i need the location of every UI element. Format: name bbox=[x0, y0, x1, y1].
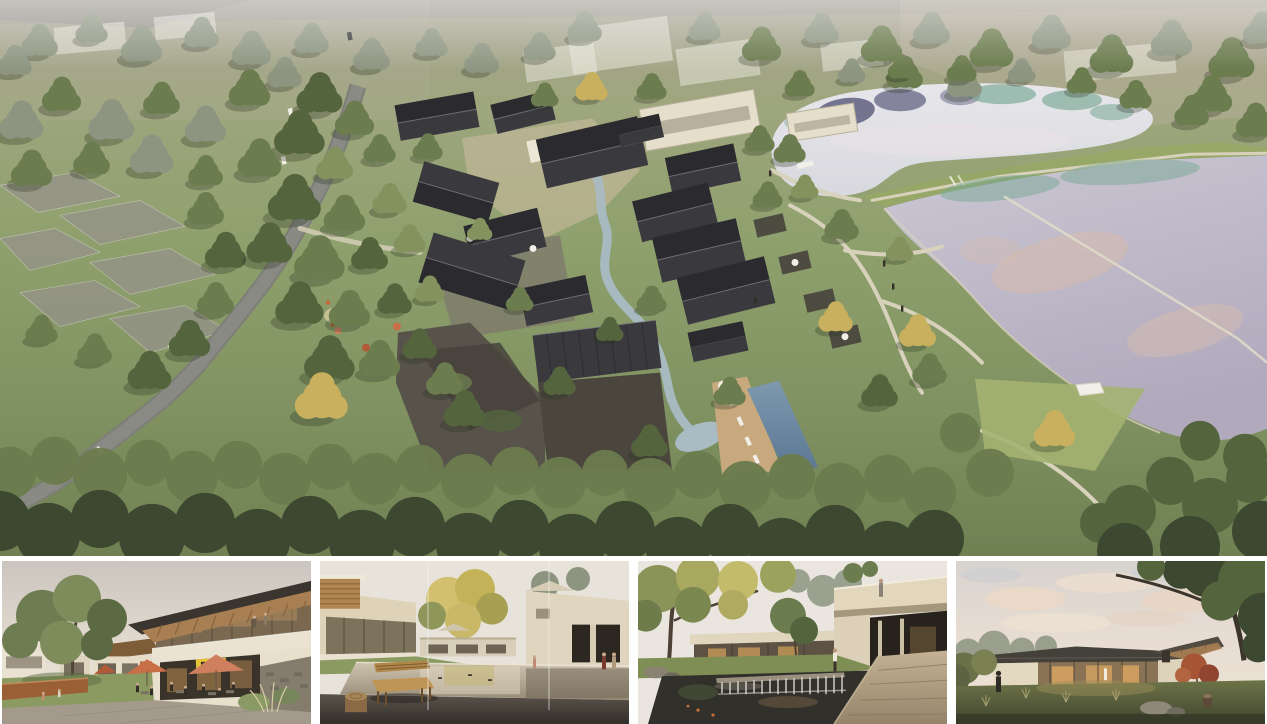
interior-person bbox=[1104, 668, 1107, 680]
top-haze-overlay bbox=[0, 0, 1267, 70]
thumbnail-strip bbox=[0, 556, 1267, 724]
plaza-rendering-panel bbox=[2, 561, 311, 724]
court-rendering-panel bbox=[638, 561, 947, 724]
log-stool bbox=[345, 692, 367, 712]
pond-rendering-panel bbox=[320, 561, 629, 724]
balcony-person bbox=[879, 583, 883, 597]
presentation-board bbox=[0, 0, 1267, 724]
person-left bbox=[996, 671, 1001, 692]
pavilion-rendering-panel bbox=[956, 561, 1265, 724]
aerial-rendering-panel bbox=[0, 0, 1267, 556]
